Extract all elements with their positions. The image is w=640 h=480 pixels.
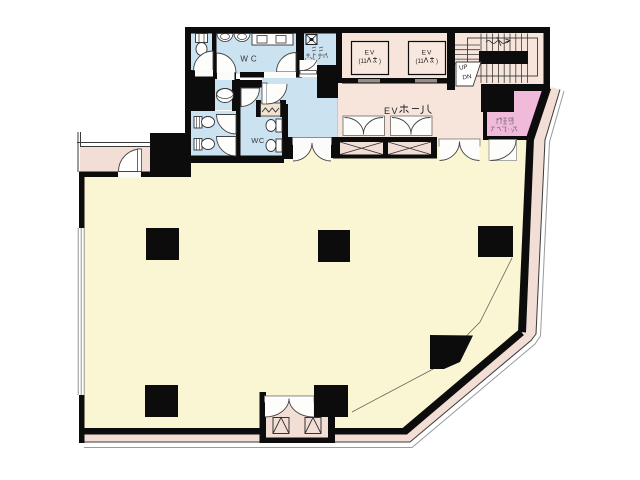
svg-text:): ) — [379, 59, 381, 65]
svg-text:): ) — [436, 59, 438, 65]
svg-text:(11: (11 — [416, 59, 425, 65]
svg-text:WC: WC — [251, 136, 265, 145]
svg-text:EV: EV — [422, 50, 433, 57]
svg-text:EV: EV — [365, 50, 376, 57]
svg-text:WC: WC — [240, 55, 259, 64]
svg-text:(11: (11 — [359, 59, 368, 65]
svg-text:UP: UP — [459, 63, 469, 71]
svg-text:EV: EV — [384, 106, 399, 116]
